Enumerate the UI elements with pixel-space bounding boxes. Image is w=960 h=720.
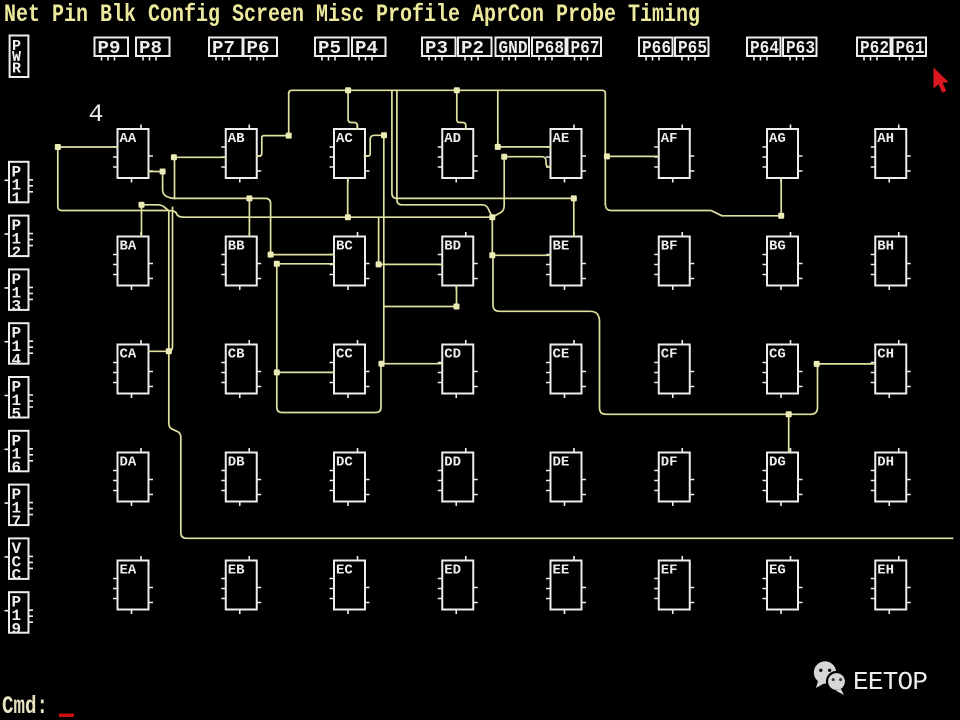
svg-text:EF: EF [661, 563, 678, 579]
svg-text:BB: BB [228, 239, 245, 255]
svg-text:AC: AC [336, 131, 353, 147]
svg-text:AA: AA [120, 131, 137, 147]
svg-text:EE: EE [553, 563, 570, 579]
svg-text:CH: CH [877, 347, 894, 363]
svg-text:P61: P61 [896, 39, 925, 59]
svg-text:C: C [12, 567, 22, 585]
svg-text:CG: CG [769, 347, 786, 363]
svg-text:DB: DB [228, 455, 245, 471]
svg-text:P7: P7 [212, 39, 235, 59]
svg-text:7: 7 [12, 513, 22, 531]
svg-text:ED: ED [444, 563, 461, 579]
svg-text:P8: P8 [139, 39, 162, 59]
svg-text:EC: EC [336, 563, 353, 579]
svg-text:CB: CB [228, 347, 245, 363]
svg-text:P68: P68 [535, 39, 564, 59]
svg-text:BG: BG [769, 239, 786, 255]
svg-text:CF: CF [661, 347, 678, 363]
svg-text:1: 1 [12, 190, 22, 208]
svg-text:P6: P6 [247, 39, 270, 59]
svg-text:AB: AB [228, 131, 245, 147]
svg-text:5: 5 [12, 405, 22, 423]
svg-text:CC: CC [336, 347, 353, 363]
svg-text:BC: BC [336, 239, 353, 255]
svg-text:DD: DD [444, 455, 461, 471]
svg-text:BH: BH [877, 239, 894, 255]
svg-text:AG: AG [769, 131, 786, 147]
svg-text:EA: EA [120, 563, 137, 579]
svg-text:9: 9 [12, 621, 22, 639]
svg-text:R: R [12, 60, 21, 77]
svg-text:BF: BF [661, 239, 678, 255]
svg-text:P2: P2 [461, 39, 484, 59]
svg-text:4: 4 [12, 352, 22, 370]
svg-text:2: 2 [12, 244, 22, 262]
svg-text:EB: EB [228, 563, 245, 579]
svg-text:DC: DC [336, 455, 353, 471]
svg-text:P3: P3 [425, 39, 448, 59]
svg-text:DG: DG [769, 455, 786, 471]
svg-text:CE: CE [553, 347, 570, 363]
svg-text:Net Pin Blk Config Screen Misc: Net Pin Blk Config Screen Misc Profile A… [4, 0, 700, 29]
svg-text:EH: EH [877, 563, 894, 579]
svg-text:BD: BD [444, 239, 461, 255]
svg-text:EETOP: EETOP [853, 667, 928, 697]
svg-text:AD: AD [444, 131, 461, 147]
svg-text:AE: AE [553, 131, 570, 147]
svg-text:AH: AH [877, 131, 894, 147]
svg-text:P64: P64 [750, 39, 779, 59]
svg-text:DF: DF [661, 455, 678, 471]
svg-text:P65: P65 [678, 39, 707, 59]
svg-text:P62: P62 [860, 39, 889, 59]
svg-text:DA: DA [120, 455, 137, 471]
svg-text:CA: CA [120, 347, 137, 363]
svg-text:GND: GND [499, 39, 528, 59]
svg-text:P67: P67 [571, 39, 600, 59]
svg-text:P63: P63 [786, 39, 815, 59]
svg-text:4: 4 [89, 100, 104, 129]
svg-text:DE: DE [553, 455, 570, 471]
svg-text:DH: DH [877, 455, 894, 471]
svg-text:AF: AF [661, 131, 678, 147]
svg-text:EG: EG [769, 563, 786, 579]
svg-text:Cmd:: Cmd: [2, 692, 48, 720]
svg-text:P4: P4 [355, 39, 378, 59]
svg-text:BA: BA [120, 239, 137, 255]
svg-text:6: 6 [12, 459, 22, 477]
svg-text:BE: BE [553, 239, 570, 255]
svg-text:P66: P66 [642, 39, 671, 59]
svg-text:P5: P5 [318, 39, 341, 59]
svg-text:CD: CD [444, 347, 461, 363]
svg-text:P9: P9 [98, 39, 121, 59]
svg-text:3: 3 [12, 298, 22, 316]
